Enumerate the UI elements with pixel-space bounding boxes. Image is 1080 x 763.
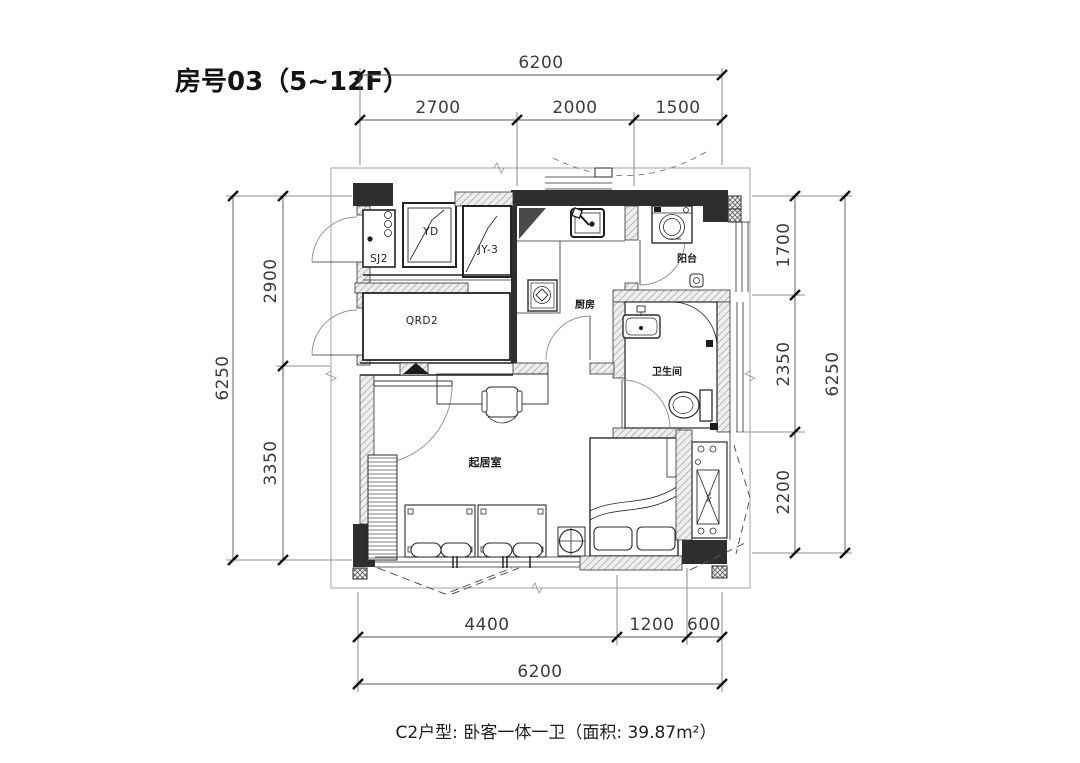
desk-chair	[482, 387, 522, 423]
dim-bottom-seg-2: 1200	[629, 615, 674, 635]
shoe-cabinet	[368, 455, 397, 560]
dimension-right: 1700 2350 2200 6250	[736, 191, 852, 558]
floor-plan-page: 房号03（5~12F） 6200 2700 2000 1500 6250 290…	[0, 0, 1080, 763]
bathroom-side-window	[737, 302, 743, 432]
pillow	[594, 527, 632, 550]
sofa-left	[405, 505, 475, 557]
label-living: 起居室	[468, 455, 502, 469]
label-yd: YD	[422, 226, 439, 238]
label-jy3: JY-3	[477, 244, 499, 256]
bed-ac-wall	[676, 430, 692, 540]
bed	[590, 438, 678, 556]
dimension-bottom: 4400 1200 600 6200	[353, 568, 727, 692]
room-sj2: SJ2	[363, 210, 395, 267]
dim-bottom-seg-3: 600	[687, 615, 721, 635]
dim-left-total: 6250	[213, 355, 233, 400]
label-sj2: SJ2	[370, 253, 388, 265]
stove	[528, 280, 557, 311]
label-balcony: 阳台	[677, 252, 697, 265]
room-living: 起居室	[360, 363, 614, 560]
room-kitchen: 厨房	[517, 208, 625, 360]
pillow	[637, 527, 675, 550]
duct-yd: YD	[403, 203, 456, 267]
room-bathroom: 卫生间	[613, 290, 730, 438]
label-ac: A/C	[705, 491, 713, 503]
dimension-top: 6200 2700 2000 1500	[355, 53, 727, 186]
toilet	[669, 390, 712, 421]
window-opening-dash	[452, 568, 519, 594]
window-opening-dash	[378, 568, 512, 594]
dim-left-seg-2: 3350	[261, 440, 281, 485]
label-qrd2: QRD2	[406, 315, 438, 327]
dim-bottom-total: 6200	[517, 662, 562, 682]
overhead-dashed-arc	[545, 152, 706, 189]
floor-plan-svg: 房号03（5~12F） 6200 2700 2000 1500 6250 290…	[0, 0, 1080, 763]
drawing-title: 房号03（5~12F）	[175, 67, 409, 97]
round-table	[558, 527, 585, 556]
sofa-right	[478, 505, 546, 557]
dim-top-seg-2: 2000	[552, 98, 597, 118]
entry-door-lower-arc	[312, 310, 357, 355]
floor-drain	[690, 274, 703, 287]
kitchen-door-arc	[546, 316, 590, 360]
balcony-window	[730, 222, 750, 292]
dim-bottom-seg-1: 4400	[464, 615, 509, 635]
bedroom-side-opening	[730, 432, 750, 554]
dim-right-total: 6250	[823, 351, 843, 396]
ac-unit: A/C	[692, 442, 727, 538]
counter-corner	[519, 208, 546, 239]
entry-door-arc	[374, 381, 452, 464]
duct-jy3: JY-3	[463, 206, 511, 277]
entry-door-top-arc	[312, 217, 357, 262]
room-qrd2: QRD2	[355, 275, 513, 360]
dim-top-seg-1: 2700	[415, 98, 460, 118]
dim-right-seg-3: 2200	[774, 469, 794, 514]
kitchen-sink	[571, 208, 604, 237]
dim-right-seg-1: 1700	[774, 222, 794, 267]
label-kitchen: 厨房	[575, 298, 595, 311]
plan-caption: C2户型: 卧客一体一卫（面积: 39.87m²）	[396, 723, 717, 743]
dim-top-total: 6200	[518, 53, 563, 73]
label-bathroom: 卫生间	[652, 365, 682, 378]
washing-machine	[652, 206, 692, 243]
dim-right-seg-2: 2350	[774, 341, 794, 386]
dim-left-seg-1: 2900	[261, 258, 281, 303]
wall-above-jy3	[455, 192, 513, 206]
dim-top-seg-3: 1500	[655, 98, 700, 118]
